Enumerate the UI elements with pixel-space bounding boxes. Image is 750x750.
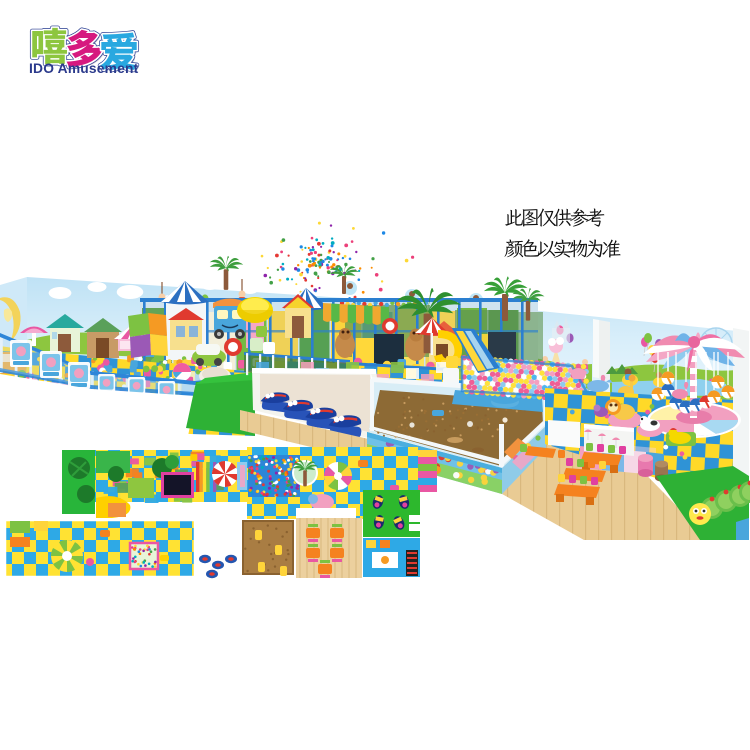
svg-text:IDO Amusement: IDO Amusement [29, 61, 139, 76]
